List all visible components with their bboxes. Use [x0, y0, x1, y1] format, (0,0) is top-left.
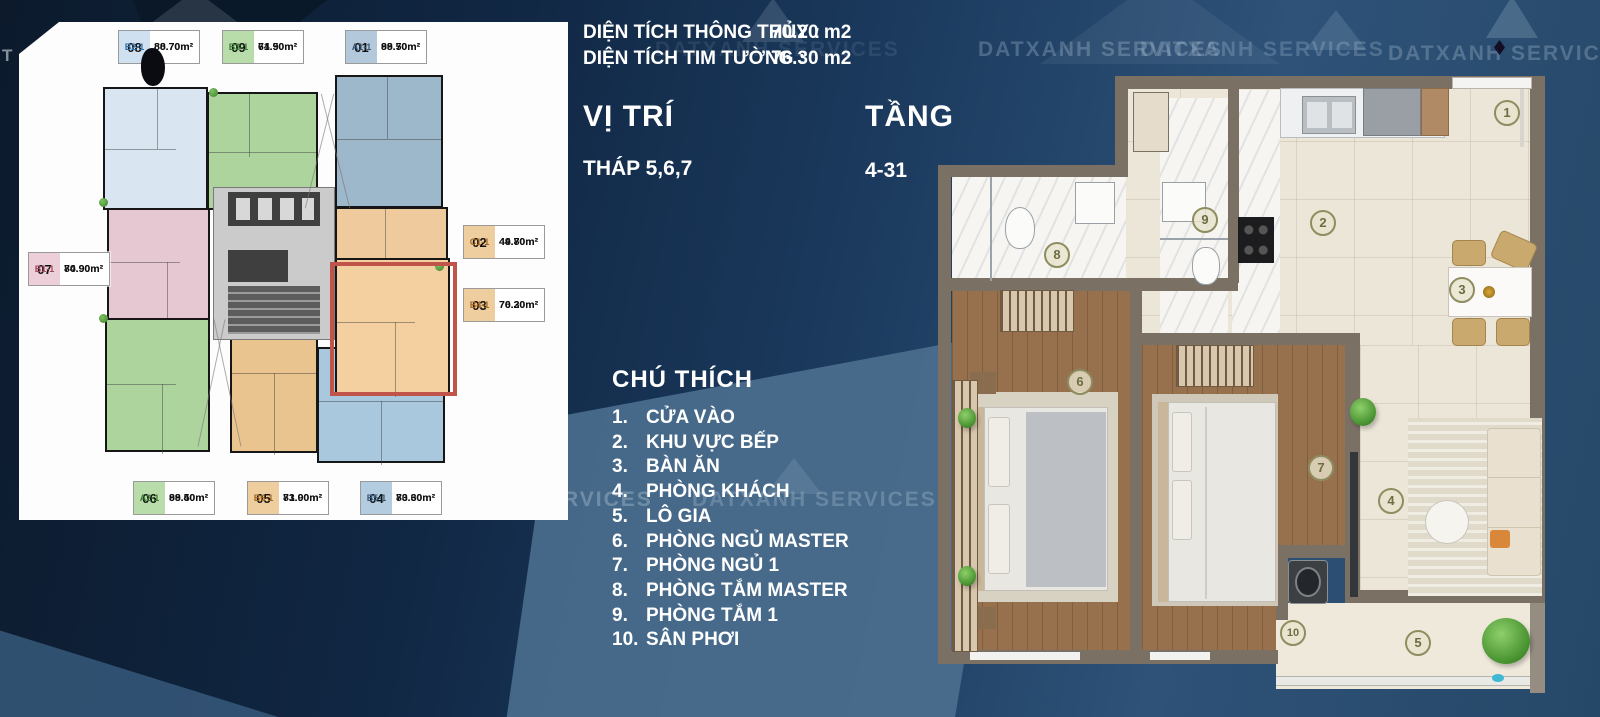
unit-07-shape [107, 208, 210, 322]
legend-item: 3.BÀN ĂN [612, 455, 942, 480]
wall [938, 165, 951, 291]
blanket [1205, 407, 1275, 599]
legend-item: 7.PHÒNG NGỦ 1 [612, 554, 942, 579]
kitchen-sink [1302, 96, 1356, 134]
wall [1130, 290, 1142, 650]
unit-label-01: 01A1-1 98.50m²89.70m² [345, 30, 427, 64]
throw-pillow [1490, 530, 1510, 548]
unit-label-04: 04B5-1 80.60m²73.30m² [360, 481, 442, 515]
unit-area-net: 73.30m² [396, 492, 435, 504]
area-gross-label: DIỆN TÍCH TIM TƯỜNG : [583, 48, 771, 70]
unit-label-05: 05B6-1 81.00m²73.90m² [247, 481, 329, 515]
plant-icon [958, 408, 976, 428]
area-net-row: DIỆN TÍCH THÔNG THỦY : 70.20 m2 [583, 22, 851, 44]
vanity-sink [1075, 182, 1115, 224]
dining-chair [1496, 318, 1530, 346]
plant-icon [99, 198, 108, 207]
building-core [213, 187, 335, 340]
room-marker-4: 4 [1378, 488, 1404, 514]
window [1150, 652, 1210, 660]
entrance-door [1452, 77, 1532, 89]
position-heading: VỊ TRÍ [583, 100, 674, 134]
area-net-label: DIỆN TÍCH THÔNG THỦY : [583, 22, 771, 44]
washing-machine [1288, 560, 1328, 604]
floor-heading: TẦNG [865, 100, 954, 134]
unit-area-net: 89.40m² [169, 492, 208, 504]
tv-console [1350, 452, 1358, 597]
area-gross-value: 76.30 m2 [771, 48, 851, 70]
unit-code: B6-1 [254, 493, 274, 503]
refrigerator [1363, 88, 1421, 136]
highlighted-unit-box [330, 262, 457, 396]
legend-item: 8.PHÒNG TẮM MASTER [612, 579, 942, 604]
apartment-floorplan: 1 2 3 4 5 6 7 8 9 10 [930, 62, 1545, 694]
unit-label-03: 03B4-1 76.30m²70.20m² [463, 288, 545, 322]
unit-code: A1-1 [352, 42, 372, 52]
unit-code: B5-1 [367, 493, 387, 503]
legend-item: 4.PHÒNG KHÁCH [612, 480, 942, 505]
room-marker-10: 10 [1280, 620, 1306, 646]
unit-code: B3-1 [229, 42, 249, 52]
table-centerpiece [1483, 286, 1495, 298]
window [970, 652, 1080, 660]
kitchen-cabinet [1421, 88, 1449, 136]
unit-code: A2-1 [140, 493, 160, 503]
shower-glass [990, 177, 992, 281]
sofa [1487, 428, 1541, 576]
room-marker-2: 2 [1310, 210, 1336, 236]
unit-06-shape [105, 318, 210, 452]
room-marker-7: 7 [1308, 455, 1334, 481]
cooktop [1238, 217, 1274, 263]
floorplate-panel: 08B2-1 88.70m²80.70m² 09B3-1 71.50m²64.9… [19, 22, 568, 520]
room-marker-9: 9 [1192, 207, 1218, 233]
unit-label-06: 06A2-1 98.50m²89.40m² [133, 481, 215, 515]
pillow [1172, 480, 1192, 540]
toilet [1192, 247, 1220, 285]
unit-08-shape [103, 87, 208, 210]
pillow [988, 504, 1010, 574]
wall [1142, 333, 1345, 345]
door-leaf [1520, 89, 1524, 147]
unit-area-net: 70.20m² [499, 299, 538, 311]
room-marker-5: 5 [1405, 630, 1431, 656]
slide-background: DATXANH SERVICES DATXANH SERVICES DATXAN… [0, 0, 1600, 717]
pillow [1172, 412, 1192, 472]
area-gross-row: DIỆN TÍCH TIM TƯỜNG : 76.30 m2 [583, 48, 851, 70]
background-shape [0, 570, 320, 717]
room-marker-6: 6 [1067, 369, 1093, 395]
room-marker-8: 8 [1044, 242, 1070, 268]
wall [1115, 76, 1128, 176]
unit-code: B2-1 [125, 42, 145, 52]
bed-headboard [1158, 402, 1168, 602]
dining-chair [1452, 240, 1486, 266]
plant-icon [1482, 618, 1530, 664]
storage-niche [1133, 92, 1169, 152]
unit-area-net: 64.90m² [258, 41, 297, 53]
legend-item: 2.KHU VỰC BẾP [612, 431, 942, 456]
unit-area-net: 44.70m² [499, 236, 538, 248]
legend-list: 1.CỬA VÀO 2.KHU VỰC BẾP 3.BÀN ĂN 4.PHÒNG… [612, 406, 942, 653]
legend-item: 5.LÔ GIA [612, 505, 942, 530]
unit-label-07: 07B1-1 80.90m²74.90m² [28, 252, 110, 286]
unit-code: B4-1 [470, 300, 490, 310]
unit-02-shape [335, 207, 448, 262]
dining-chair [1452, 318, 1486, 346]
unit-code: B1-1 [35, 264, 55, 274]
legend-title: CHÚ THÍCH [612, 366, 753, 394]
floor-value: 4-31 [865, 159, 907, 183]
room-marker-3: 3 [1449, 277, 1475, 303]
legend-item: 10.SÂN PHƠI [612, 628, 942, 653]
plant-icon [99, 314, 108, 323]
blanket [1026, 412, 1106, 587]
wardrobe [1000, 290, 1074, 332]
area-net-value: 70.20 m2 [771, 22, 851, 44]
plant-icon [1350, 398, 1376, 426]
legend-item: 9.PHÒNG TẮM 1 [612, 604, 942, 629]
wall [938, 278, 1238, 291]
brand-watermark-fragment: T [2, 46, 12, 66]
room-marker-1: 1 [1494, 100, 1520, 126]
drain-icon [1492, 674, 1504, 682]
shower-glass [1160, 238, 1228, 240]
unit-area-net: 74.90m² [64, 263, 103, 275]
wall [938, 165, 1128, 177]
wardrobe [1176, 345, 1254, 387]
balcony-wall [1530, 603, 1545, 693]
cursor-blob-artifact [141, 48, 165, 86]
unit-01-shape [335, 75, 443, 208]
brand-triangle-logo-icon [1486, 0, 1538, 38]
pillow [988, 417, 1010, 487]
unit-label-09: 09B3-1 71.50m²64.90m² [222, 30, 304, 64]
unit-label-02: 02C1-1 49.80m²44.70m² [463, 225, 545, 259]
legend-item: 6.PHÒNG NGỦ MASTER [612, 530, 942, 555]
unit-area-net: 73.90m² [283, 492, 322, 504]
position-value: THÁP 5,6,7 [583, 157, 692, 181]
legend-item: 1.CỬA VÀO [612, 406, 942, 431]
brand-watermark: DATXANH SERVICES [1140, 38, 1385, 62]
coffee-table [1425, 500, 1469, 544]
unit-code: C1-1 [470, 237, 490, 247]
toilet [1005, 207, 1035, 249]
plant-icon [958, 566, 976, 586]
plant-icon [209, 88, 218, 97]
unit-area-net: 89.70m² [381, 41, 420, 53]
